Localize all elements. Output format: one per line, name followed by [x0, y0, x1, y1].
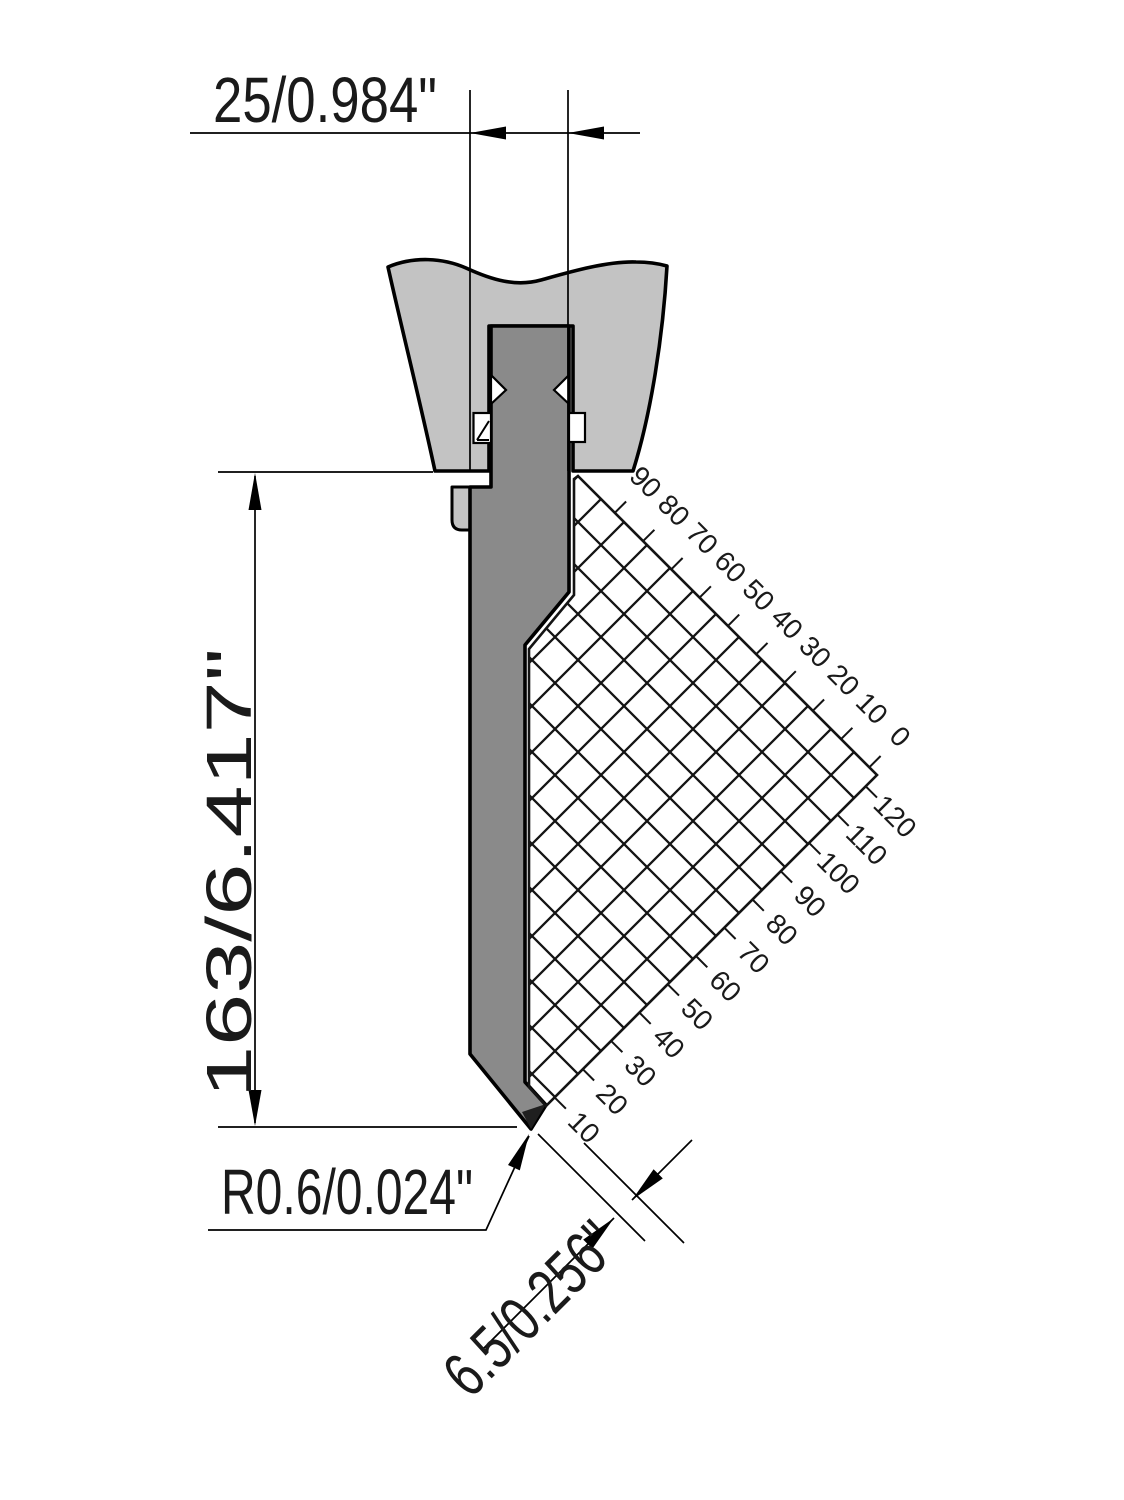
dim-height-arrow-top: [249, 473, 262, 510]
grid-scale-label: 50: [675, 992, 719, 1036]
dim-flank-extension-lines: [538, 1134, 684, 1243]
tip-radius-arrow: [508, 1134, 529, 1170]
grid-scale-label: 40: [647, 1021, 691, 1065]
right-pin-slot: [569, 413, 585, 442]
grid-scale-label: 40: [765, 601, 809, 645]
tip-radius-callout: R0.6/0.024": [208, 1134, 529, 1230]
punch-technical-drawing: 90 80 70 60 50 40 30 20 10 0 120 110 100…: [0, 0, 1124, 1500]
grid-scale-label: 80: [760, 908, 804, 952]
dim-flank-arrow-outer: [632, 1169, 663, 1200]
grid-scale-label: 60: [708, 545, 752, 589]
left-pin-slot: [474, 413, 492, 443]
dim-width-arrow-left: [470, 127, 506, 140]
grid-scale-label: 20: [822, 658, 866, 702]
grid-scale-label: 90: [788, 879, 832, 923]
grid-scale-label: 70: [732, 936, 776, 980]
grid-scale-label: 0: [884, 720, 917, 753]
grid-scale-label: 50: [737, 573, 781, 617]
drawing-canvas: 90 80 70 60 50 40 30 20 10 0 120 110 100…: [0, 0, 1124, 1500]
grid-scale-label: 10: [562, 1105, 606, 1149]
dim-flank-text: 6.5/0.256": [429, 1207, 632, 1410]
grid-scale-label: 30: [793, 630, 837, 674]
grid-scale-label: 70: [680, 517, 724, 561]
grid-scale-label: 30: [618, 1049, 662, 1093]
tip-radius-text: R0.6/0.024": [221, 1156, 473, 1228]
grid-scale-label: 10: [850, 686, 894, 730]
angle-grid: 90 80 70 60 50 40 30 20 10 0 120 110 100…: [529, 460, 923, 1149]
grid-scale-label: 80: [652, 488, 696, 532]
safety-clip: [452, 487, 470, 530]
dim-width-arrow-right: [568, 127, 604, 140]
dim-height-text: 163/6.417": [193, 648, 265, 1098]
grid-scale-label: 60: [703, 964, 747, 1008]
grid-scale-label: 20: [590, 1077, 634, 1121]
dim-width-text: 25/0.984": [213, 64, 437, 136]
